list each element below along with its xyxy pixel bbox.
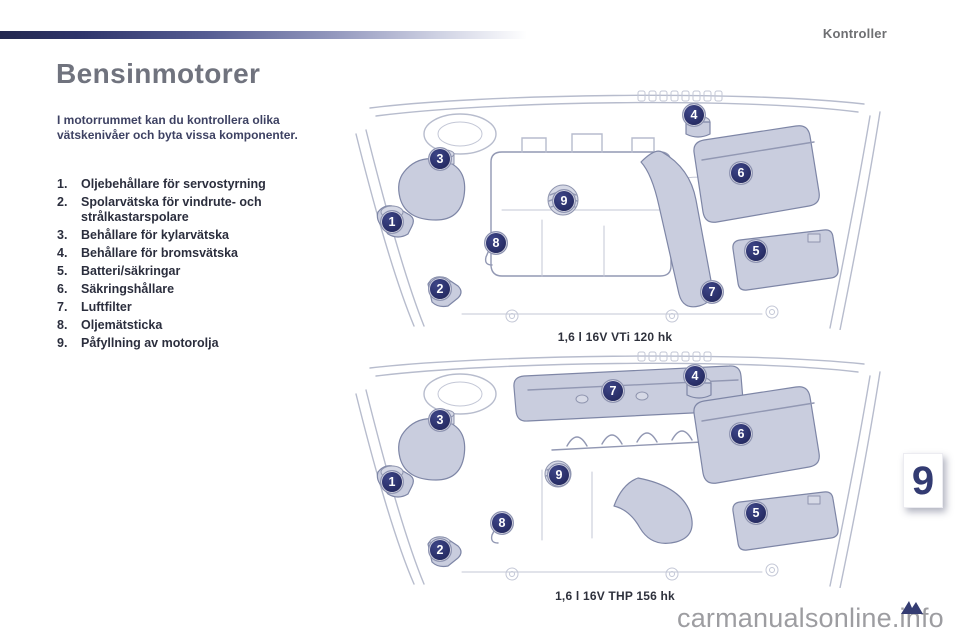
- legend-item-label: Säkringshållare: [81, 282, 327, 297]
- legend-item-number: 4.: [57, 246, 81, 261]
- callout-badge-8: 8: [484, 231, 508, 255]
- legend-item-number: 5.: [57, 264, 81, 279]
- legend-item: 5.Batteri/säkringar: [57, 264, 327, 279]
- legend-item-label: Oljebehållare för servostyrning: [81, 177, 327, 192]
- engine-bay-sketch-vti: [342, 88, 888, 330]
- legend-item-number: 3.: [57, 228, 81, 243]
- page-title: Bensinmotorer: [56, 58, 260, 90]
- legend-item-label: Behållare för bromsvätska: [81, 246, 327, 261]
- callout-badge-3: 3: [428, 147, 452, 171]
- diagram-caption-vti: 1,6 l 16V VTi 120 hk: [342, 330, 888, 344]
- legend-item-label: Luftfilter: [81, 300, 327, 315]
- chapter-tab: 9: [903, 453, 943, 508]
- callout-badge-4: 4: [683, 364, 707, 388]
- legend-item-label: Spolarvätska för vindrute- och strålkast…: [81, 195, 327, 225]
- callout-badge-6: 6: [729, 161, 753, 185]
- header-gradient-rule: [0, 31, 573, 39]
- legend-item-label: Oljemätsticka: [81, 318, 327, 333]
- legend-item: 3.Behållare för kylarvätska: [57, 228, 327, 243]
- engine-diagram-thp: 123456789: [342, 350, 888, 588]
- callout-badge-8: 8: [490, 511, 514, 535]
- legend-item: 6.Säkringshållare: [57, 282, 327, 297]
- callout-badge-2: 2: [428, 277, 452, 301]
- legend-item-number: 7.: [57, 300, 81, 315]
- callout-badge-5: 5: [744, 501, 768, 525]
- section-label: Kontroller: [700, 26, 887, 41]
- legend-item-label: Påfyllning av motorolja: [81, 336, 327, 351]
- legend-item: 9.Påfyllning av motorolja: [57, 336, 327, 351]
- legend-item: 2.Spolarvätska för vindrute- och strålka…: [57, 195, 327, 225]
- legend-item: 1.Oljebehållare för servostyrning: [57, 177, 327, 192]
- callout-badge-1: 1: [380, 210, 404, 234]
- chapter-number: 9: [912, 461, 934, 501]
- callout-badge-9: 9: [552, 189, 576, 213]
- legend-item-number: 2.: [57, 195, 81, 225]
- callout-badge-1: 1: [380, 470, 404, 494]
- legend-item-number: 9.: [57, 336, 81, 351]
- legend-item: 4.Behållare för bromsvätska: [57, 246, 327, 261]
- callout-badge-2: 2: [428, 538, 452, 562]
- intro-text: I motorrummet kan du kontrollera olika v…: [57, 113, 319, 143]
- legend-item-number: 8.: [57, 318, 81, 333]
- legend-item: 7.Luftfilter: [57, 300, 327, 315]
- callout-badge-6: 6: [729, 422, 753, 446]
- callout-badge-9: 9: [547, 463, 571, 487]
- legend-item: 8.Oljemätsticka: [57, 318, 327, 333]
- watermark-logo-icon: [901, 601, 923, 615]
- callout-badge-5: 5: [744, 239, 768, 263]
- callout-badge-4: 4: [682, 103, 706, 127]
- legend-item-label: Batteri/säkringar: [81, 264, 327, 279]
- callout-badge-7: 7: [700, 280, 724, 304]
- callout-badge-3: 3: [428, 408, 452, 432]
- diagram-caption-thp: 1,6 l 16V THP 156 hk: [342, 589, 888, 603]
- legend-item-number: 6.: [57, 282, 81, 297]
- callout-badge-7: 7: [601, 379, 625, 403]
- legend-list: 1.Oljebehållare för servostyrning2.Spola…: [57, 177, 327, 354]
- engine-diagram-vti: 123456789: [342, 88, 888, 330]
- legend-item-label: Behållare för kylarvätska: [81, 228, 327, 243]
- legend-item-number: 1.: [57, 177, 81, 192]
